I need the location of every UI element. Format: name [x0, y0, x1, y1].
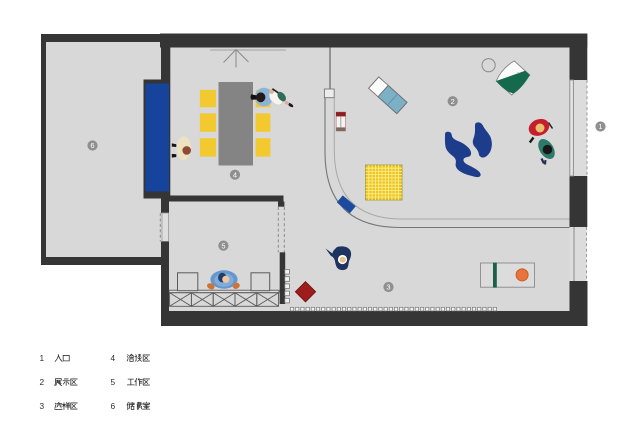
svg-text:4: 4 [233, 170, 237, 179]
svg-text:1: 1 [598, 122, 602, 131]
svg-text:3: 3 [40, 401, 45, 411]
svg-text:4: 4 [111, 353, 116, 363]
svg-text:5: 5 [221, 241, 225, 250]
svg-text:1: 1 [40, 353, 45, 363]
svg-text:3: 3 [386, 283, 390, 292]
svg-text:2: 2 [40, 377, 45, 387]
svg-text:5: 5 [111, 377, 116, 387]
svg-text:2: 2 [451, 97, 455, 106]
svg-text:6: 6 [90, 141, 94, 150]
svg-text:6: 6 [111, 401, 116, 411]
